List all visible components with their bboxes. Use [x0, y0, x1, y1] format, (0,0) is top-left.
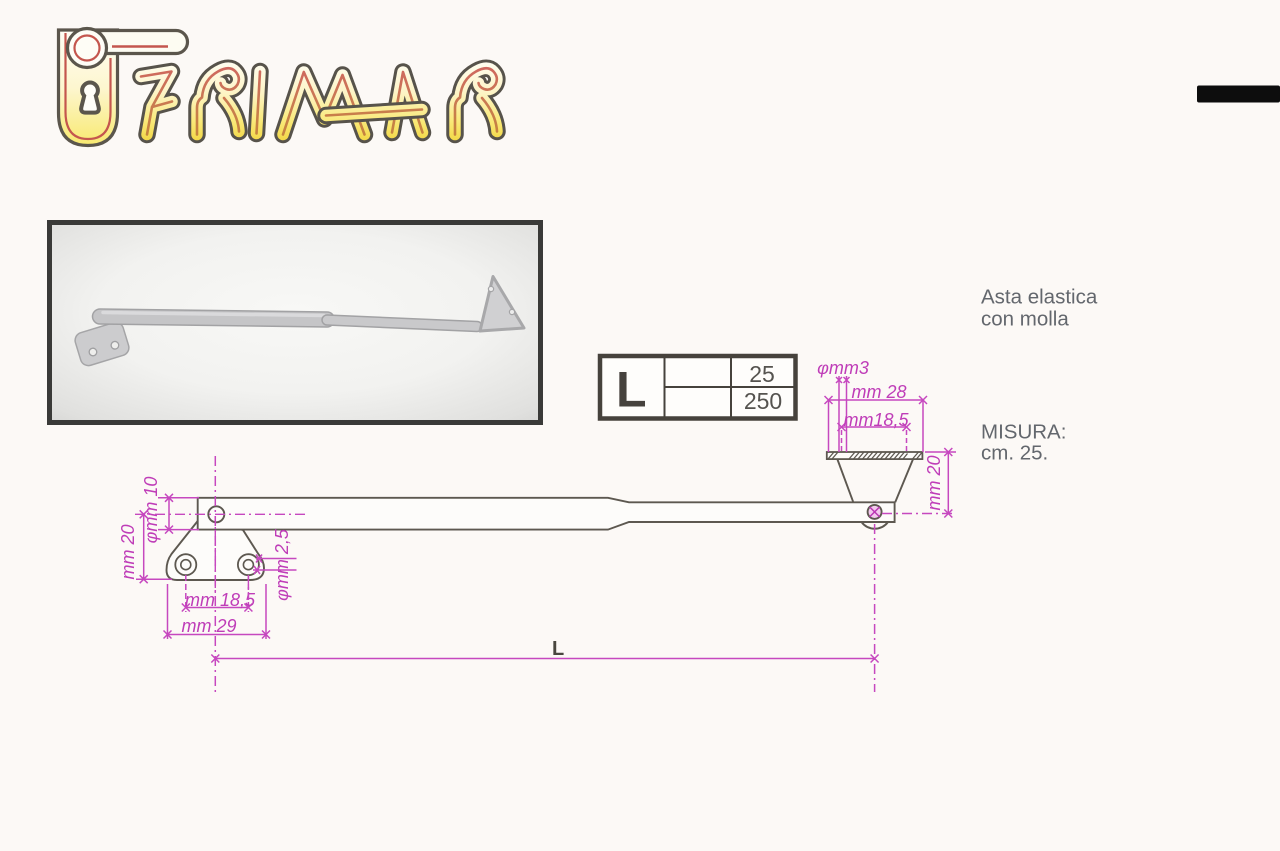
svg-text:φmm 2,5: φmm 2,5 [272, 528, 292, 601]
svg-text:mm18,5: mm18,5 [843, 410, 909, 430]
svg-text:con molla: con molla [981, 308, 1069, 331]
svg-text:mm 20: mm 20 [118, 524, 138, 579]
svg-text:MISURA:: MISURA: [981, 421, 1066, 444]
svg-text:mm 18,5: mm 18,5 [185, 590, 256, 610]
svg-text:mm 20: mm 20 [924, 455, 944, 510]
svg-text:L: L [616, 362, 647, 418]
svg-text:mm 28: mm 28 [851, 382, 906, 402]
svg-text:L: L [552, 638, 564, 660]
svg-text:250: 250 [744, 388, 782, 414]
svg-text:Asta elastica: Asta elastica [981, 286, 1098, 309]
svg-text:cm. 25.: cm. 25. [981, 442, 1048, 465]
svg-text:mm 29: mm 29 [181, 616, 236, 636]
svg-text:φmm3: φmm3 [817, 358, 869, 378]
svg-text:25: 25 [749, 361, 775, 387]
